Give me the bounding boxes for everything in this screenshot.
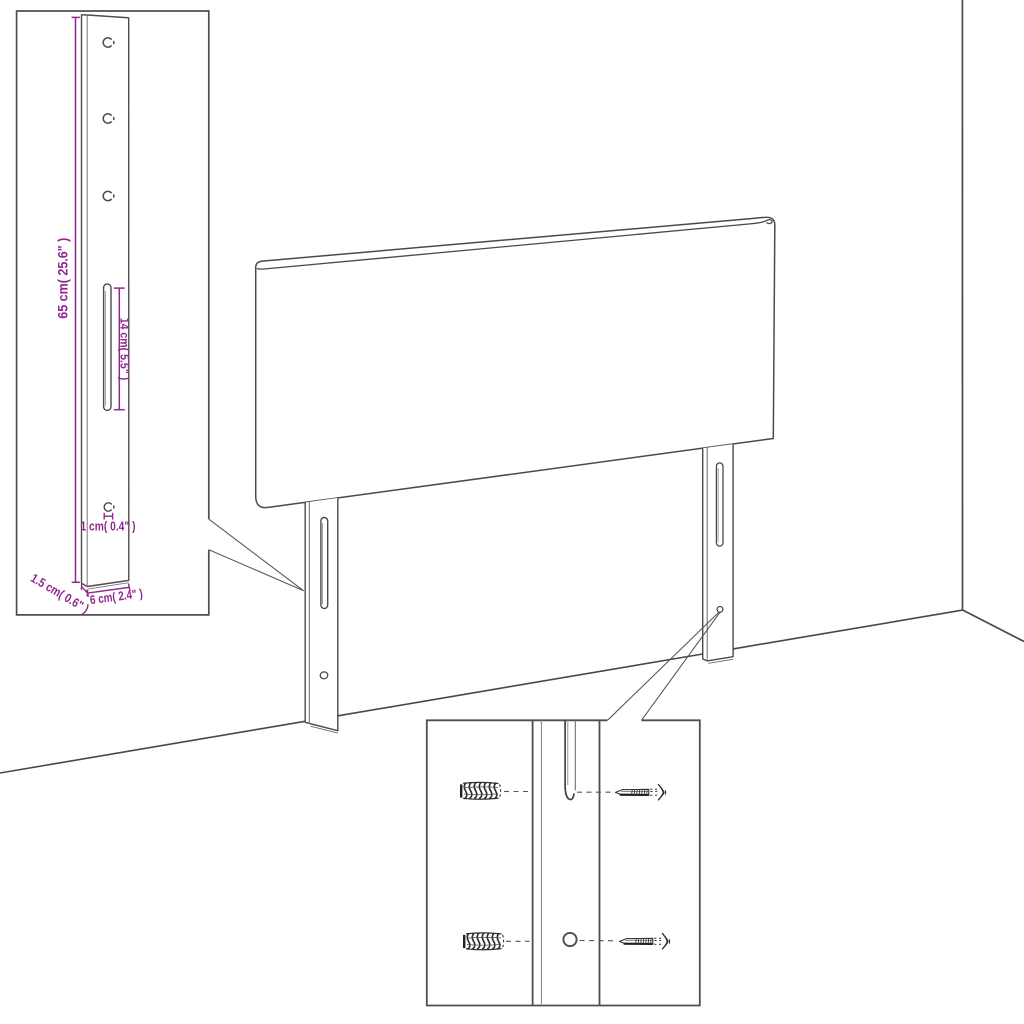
- svg-text:65 cm( 25.6" ): 65 cm( 25.6" ): [56, 238, 71, 319]
- svg-text:14 cm( 5.5" ): 14 cm( 5.5" ): [117, 318, 131, 381]
- svg-text:1 cm( 0.4" ): 1 cm( 0.4" ): [81, 519, 136, 534]
